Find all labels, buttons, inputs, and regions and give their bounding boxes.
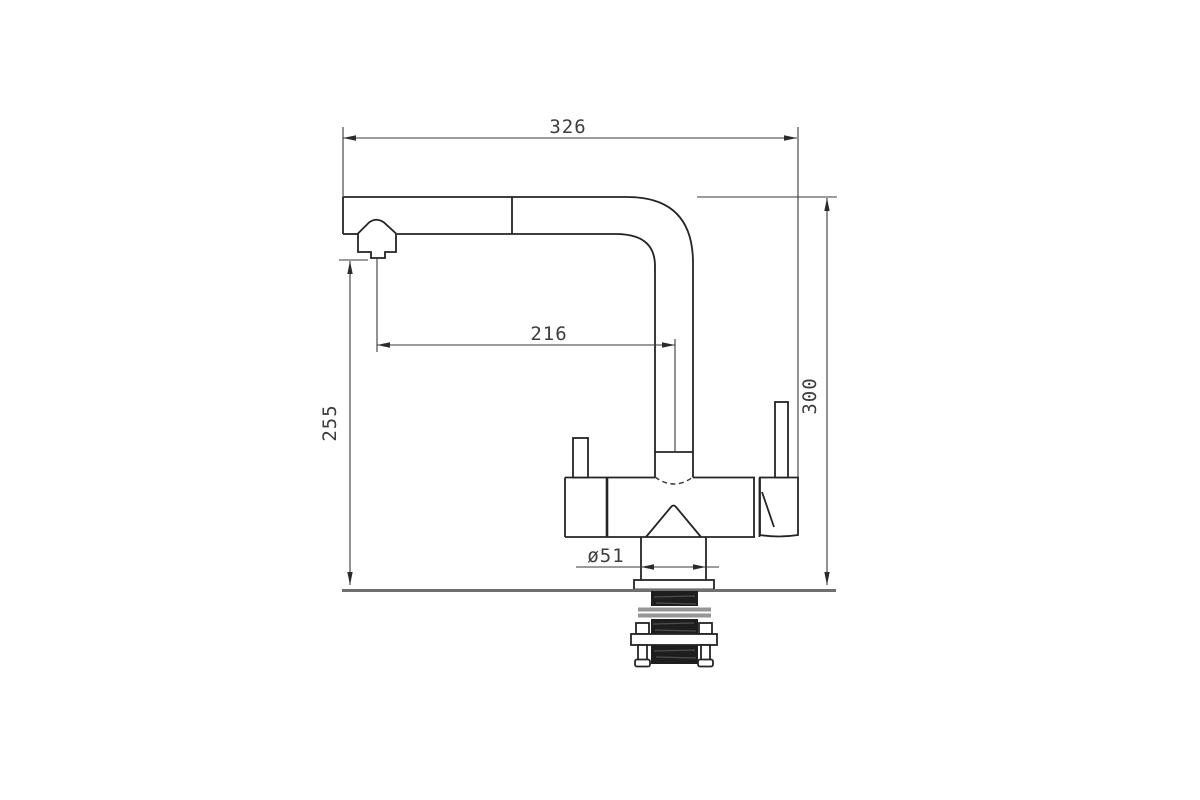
- bracket-bolt-shaft-right: [701, 645, 710, 660]
- spray-head: [358, 220, 396, 258]
- faucet-body: [565, 477, 760, 537]
- bracket-bolt-shaft-left: [638, 645, 647, 660]
- washer-stripe-top: [638, 608, 711, 612]
- drawing-page: 326 216 255 300: [0, 0, 1200, 800]
- dim-label-326: 326: [549, 116, 586, 138]
- bracket-bolt-head-left: [636, 623, 649, 634]
- dim-label-300: 300: [799, 377, 821, 414]
- dimension-overall-width: 326: [343, 116, 798, 477]
- dim-326-arrow-right: [784, 135, 797, 140]
- body-socket-arc: [655, 477, 693, 484]
- dim-216-arrow-left: [377, 342, 390, 347]
- right-valve-cap: [760, 478, 798, 537]
- bracket-bar: [631, 634, 717, 645]
- dim-255-arrow-bottom: [347, 572, 352, 585]
- dimension-spout-height: 255: [319, 260, 368, 585]
- dim-label-255: 255: [319, 404, 341, 441]
- base-neck: [634, 537, 714, 590]
- left-handle-lever: [573, 438, 588, 478]
- threaded-shank-assembly: [631, 591, 717, 667]
- right-cap-slant: [762, 492, 774, 527]
- base-flange: [634, 580, 714, 590]
- bracket-bolt-head-right: [699, 623, 712, 634]
- dim-300-arrow-top: [824, 198, 829, 211]
- body-chevron: [646, 506, 701, 538]
- spout-inner-contour: [397, 234, 655, 478]
- dim-51-arrow-right: [693, 564, 706, 569]
- dim-255-arrow-top: [347, 261, 352, 274]
- faucet-technical-drawing: 326 216 255 300: [0, 0, 1200, 800]
- bracket-bolt-foot-right: [698, 660, 713, 667]
- washer-stripe-bottom: [638, 614, 711, 618]
- threaded-shank: [651, 591, 698, 664]
- dim-216-arrow-right: [662, 342, 675, 347]
- faucet-outline: [343, 197, 798, 590]
- bracket-bolt-foot-left: [635, 660, 650, 667]
- dimension-spout-reach: 216: [377, 259, 675, 452]
- dim-label-216: 216: [530, 323, 567, 345]
- dim-label-diameter-51: ø51: [587, 545, 624, 567]
- dimension-base-diameter: ø51: [576, 545, 719, 570]
- dim-326-arrow-left: [343, 135, 356, 140]
- dimension-overall-height: 300: [697, 197, 837, 585]
- right-handle-lever: [775, 402, 788, 478]
- right-cap-outline: [760, 478, 798, 537]
- dim-51-arrow-left: [641, 564, 654, 569]
- dim-300-arrow-bottom: [824, 572, 829, 585]
